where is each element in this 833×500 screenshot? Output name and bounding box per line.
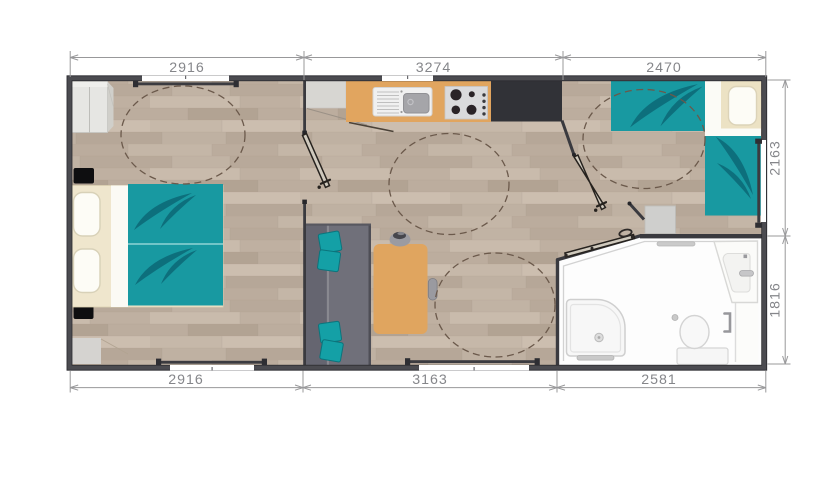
svg-text:3274: 3274 bbox=[416, 60, 452, 76]
svg-text:1816: 1816 bbox=[768, 282, 784, 318]
svg-text:2470: 2470 bbox=[646, 60, 682, 76]
svg-text:2581: 2581 bbox=[641, 372, 677, 388]
svg-text:2163: 2163 bbox=[768, 140, 784, 176]
svg-text:2916: 2916 bbox=[168, 372, 204, 388]
svg-text:2916: 2916 bbox=[169, 60, 205, 76]
svg-text:3163: 3163 bbox=[412, 372, 448, 388]
